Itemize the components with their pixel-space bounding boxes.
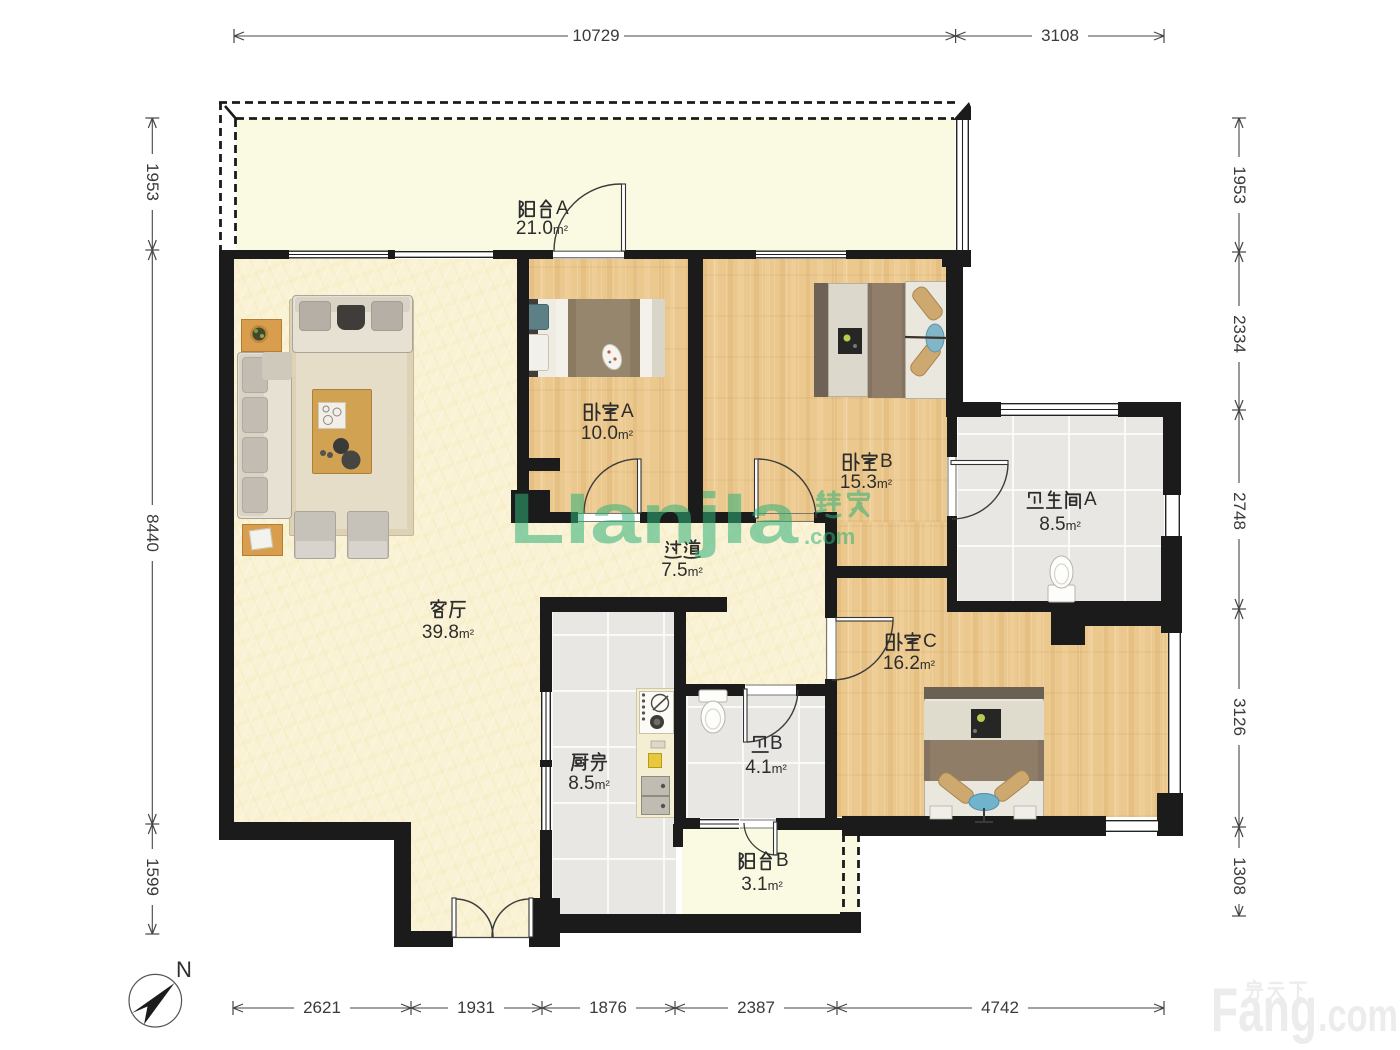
svg-text:N: N [176, 957, 192, 982]
svg-text:.com: .com [1318, 989, 1398, 1041]
svg-text:Fang: Fang [1211, 976, 1317, 1045]
